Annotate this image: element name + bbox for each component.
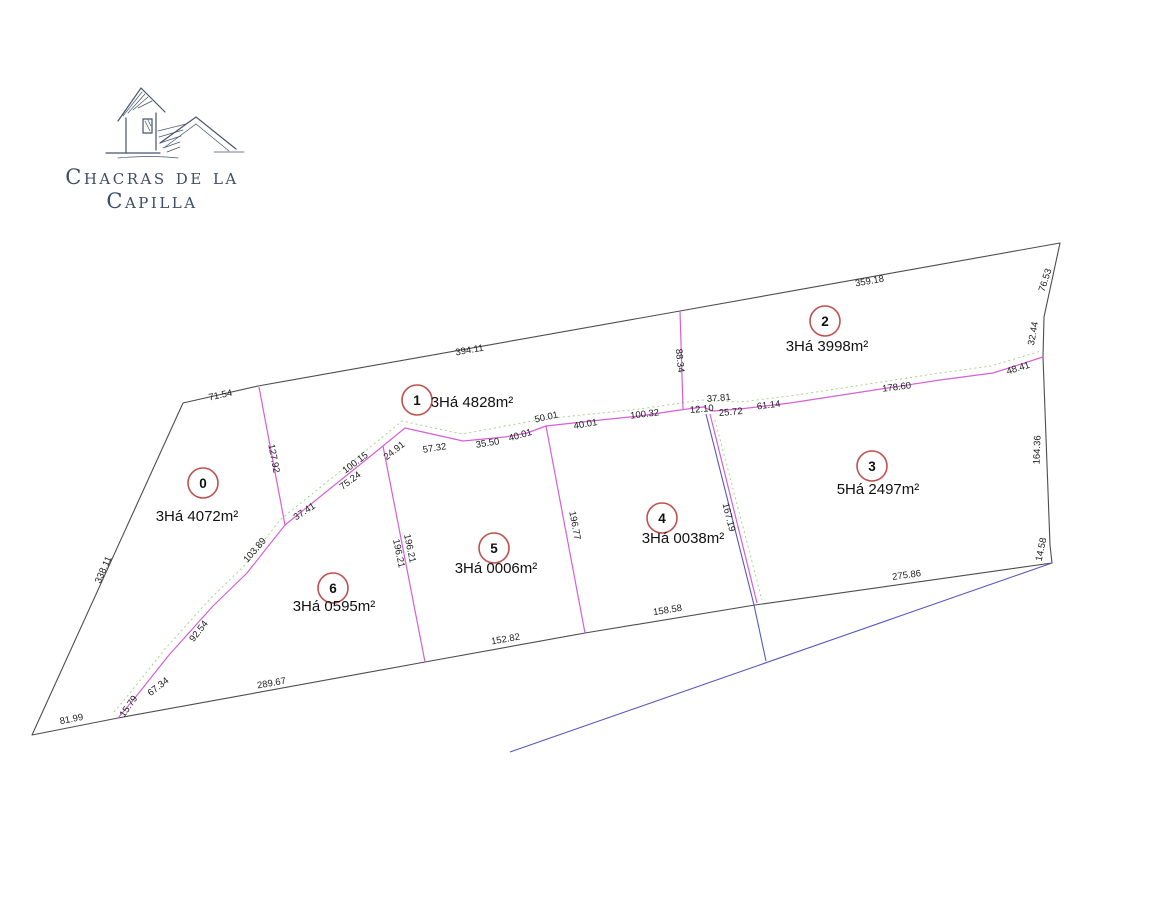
dimension-label: 359.18 (854, 274, 885, 290)
lot-1: 1 3Há 4828m² (402, 385, 513, 415)
dimension-label: 37.41 (292, 501, 318, 523)
dimension-label: 14.58 (1034, 537, 1050, 563)
dimension-label: 71.54 (208, 388, 234, 404)
dimension-label: 35.50 (475, 436, 500, 451)
lot-5: 5 3Há 0006m² (455, 533, 538, 577)
dimension-label: 57.32 (422, 441, 447, 456)
chapel-icon (106, 88, 244, 158)
dimension-label: 100.32 (630, 407, 660, 421)
lot-5-area: 3Há 0006m² (455, 560, 538, 577)
dimension-label: 48.41 (1005, 360, 1031, 377)
dimension-label: 196.77 (566, 510, 582, 541)
lot-6: 6 3Há 0595m² (293, 573, 376, 615)
dimension-label: 167.19 (720, 502, 738, 533)
lot-4: 4 3Há 0038m² (642, 503, 725, 547)
lot-2: 2 3Há 3998m² (786, 306, 869, 355)
dimension-label: 12.10 (689, 403, 714, 416)
dimension-label: 164.36 (1031, 435, 1043, 464)
survey-plan-page: Chacras de la Capilla (0, 0, 1163, 900)
lot-6-number: 6 (329, 581, 337, 596)
lot-0-area: 3Há 4072m² (156, 508, 239, 525)
lot-5-number: 5 (490, 541, 498, 556)
logo: Chacras de la Capilla (65, 88, 244, 213)
lot-3-number: 3 (868, 459, 876, 474)
dimension-label: 75.24 (338, 469, 364, 492)
dimension-label: 158.58 (652, 603, 682, 618)
lot-0: 0 3Há 4072m² (156, 468, 239, 525)
dimension-label: 178.60 (882, 380, 912, 394)
utility-lines (510, 414, 1052, 752)
dimension-label: 275.86 (891, 568, 921, 583)
dimension-label: 92.54 (187, 619, 210, 645)
dimension-label: 289.67 (256, 676, 287, 692)
dimension-label: 88.34 (673, 348, 686, 373)
dimension-label: 40.01 (573, 417, 598, 432)
utility-line-diagonal (510, 563, 1052, 752)
dimension-label: 24.91 (382, 439, 408, 462)
dimension-label: 32.44 (1026, 321, 1041, 346)
lot-6-area: 3Há 0595m² (293, 598, 376, 615)
dimension-label: 394.11 (455, 343, 485, 359)
lot-0-number: 0 (199, 476, 207, 491)
dimension-label: 338.11 (93, 555, 115, 585)
lot-4-area: 3Há 0038m² (642, 530, 725, 547)
lot-3: 3 5Há 2497m² (837, 451, 920, 498)
lot-1-area: 3Há 4828m² (431, 394, 514, 411)
logo-title-line2: Capilla (106, 189, 197, 213)
divider-lines (118, 311, 1043, 718)
lot-1-number: 1 (413, 393, 421, 408)
lot-3-area: 5Há 2497m² (837, 481, 920, 498)
dimension-label: 25.72 (718, 406, 743, 419)
dimension-label: 50.01 (534, 410, 560, 426)
plan-canvas: Chacras de la Capilla (0, 0, 1163, 900)
dimension-label: 61.14 (756, 399, 781, 413)
lot-2-number: 2 (821, 314, 829, 329)
dimension-label: 15.79 (118, 694, 141, 720)
lot-2-area: 3Há 3998m² (786, 338, 869, 355)
divider-lot4-lot3 (710, 414, 757, 603)
lot-4-number: 4 (658, 511, 666, 526)
logo-title-line1: Chacras de la (65, 165, 238, 189)
dimension-label: 127.92 (265, 443, 281, 474)
dimension-label: 40.01 (507, 427, 533, 444)
